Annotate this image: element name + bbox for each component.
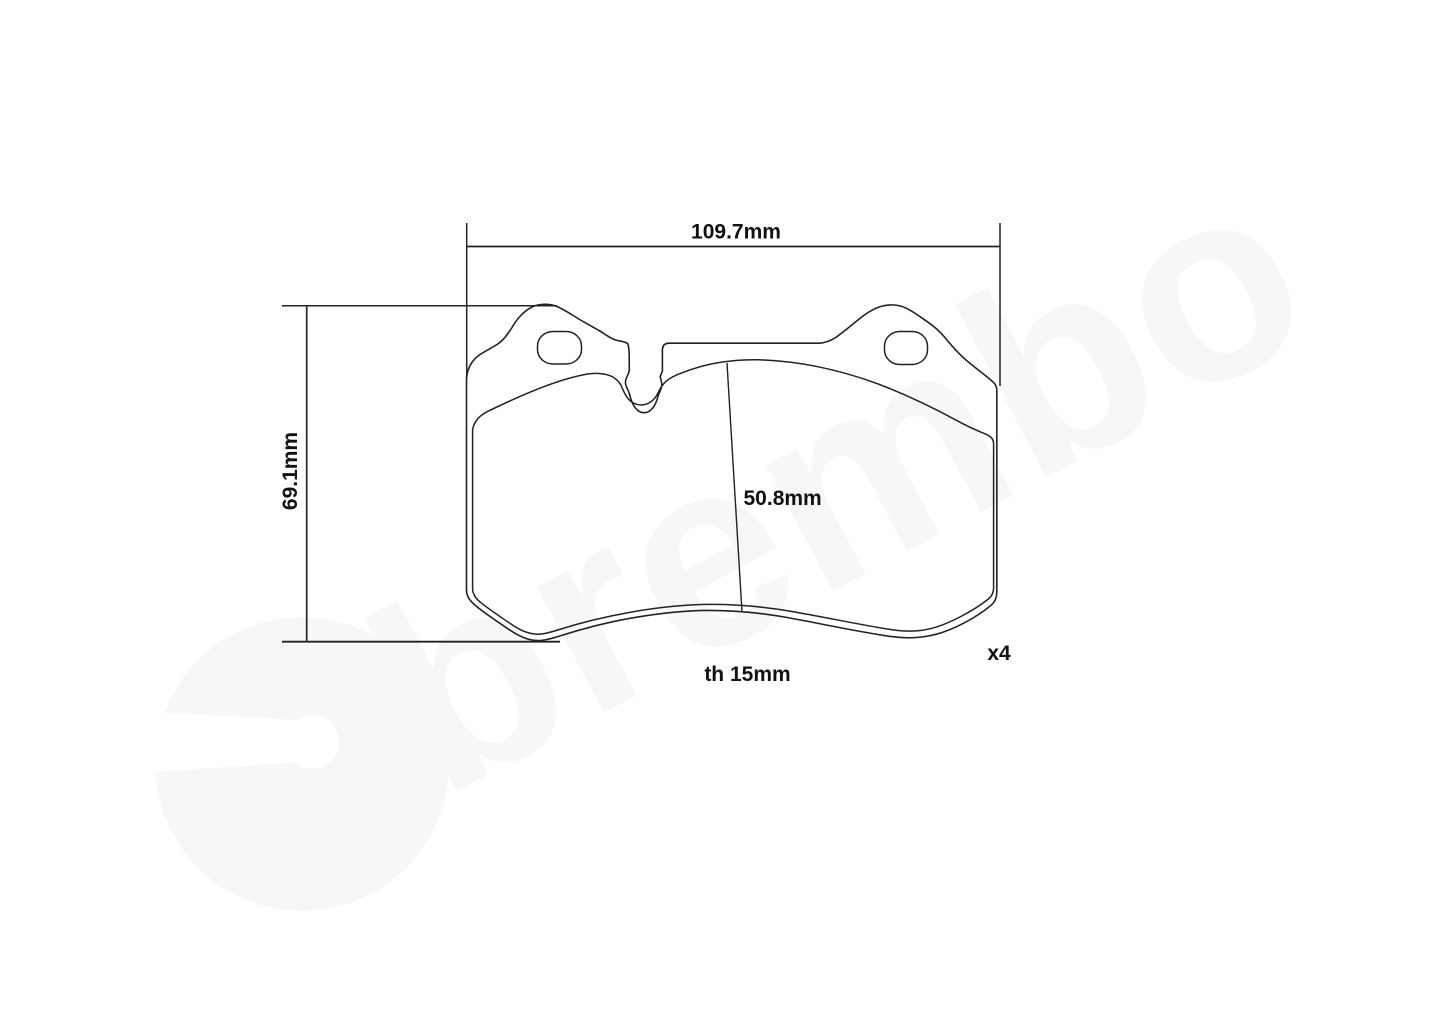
height-dimension-label: 69.1mm (279, 432, 302, 510)
technical-drawing: brembo (0, 0, 1445, 1022)
left-ear-hole (538, 332, 582, 365)
watermark-wordmark: brembo (326, 115, 1352, 851)
quantity-label: x4 (987, 642, 1011, 665)
width-dimension-label: 109.7mm (691, 221, 781, 244)
watermark-disc-slot (148, 712, 300, 772)
pad-height-dimension-label: 50.8mm (744, 487, 822, 510)
brake-pad-technical-drawing-page: brembo (0, 0, 1445, 1022)
thickness-label: th 15mm (704, 663, 790, 686)
